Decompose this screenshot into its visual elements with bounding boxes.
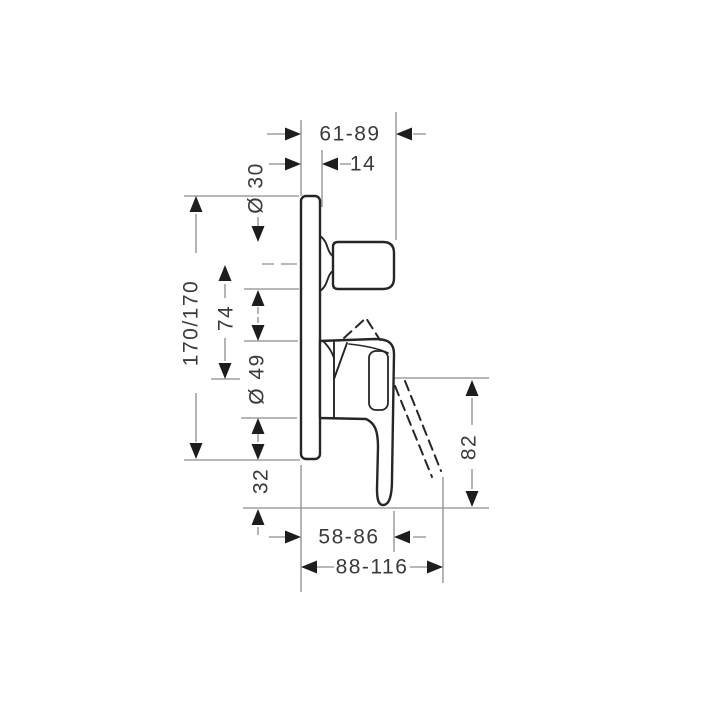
arrow-down-icon	[219, 363, 232, 379]
arrow-left-icon	[322, 158, 338, 171]
arrow-down-icon	[190, 443, 203, 459]
dim-label-knob-diameter: Ø 30	[245, 162, 268, 214]
arrow-up-icon	[466, 380, 479, 396]
arrow-left-icon	[394, 531, 410, 544]
arrow-right-icon	[285, 158, 301, 171]
arrow-up-icon	[252, 509, 265, 525]
fixture	[301, 196, 394, 505]
arrow-down-icon	[252, 325, 265, 341]
dim-label-swung-projection-range: 88-116	[336, 556, 409, 579]
dim-label-lower-offset: 32	[250, 468, 273, 494]
escutcheon-plate-outline	[301, 196, 320, 459]
arrow-up-icon	[252, 290, 265, 306]
technical-drawing-canvas: 61-89 14 Ø 30 170/170 74 Ø 49 32 82 58-8…	[0, 0, 720, 720]
arrow-down-icon	[252, 226, 265, 242]
arrow-up-icon	[252, 418, 265, 434]
lever-swung-position-dashed-inner	[405, 381, 441, 471]
dimension-drawing-svg: 61-89 14 Ø 30 170/170 74 Ø 49 32 82 58-8…	[0, 0, 720, 720]
dim-label-plate-depth: 14	[350, 153, 376, 176]
arrow-down-icon	[252, 444, 265, 460]
arrow-right-icon	[285, 128, 301, 141]
dim-label-hub-diameter: Ø 49	[246, 353, 269, 405]
arrow-left-icon	[396, 128, 412, 141]
diverter-knob-outline	[333, 242, 394, 289]
arrow-right-icon	[285, 531, 301, 544]
dim-label-axis-distance: 74	[215, 305, 238, 331]
arrow-up-icon	[190, 196, 203, 212]
arrow-down-icon	[466, 491, 479, 507]
dim-label-depth-range: 61-89	[319, 123, 380, 146]
dim-label-projection-range: 58-86	[318, 526, 379, 549]
arrow-right-icon	[427, 561, 443, 574]
dim-label-lever-length: 82	[458, 434, 481, 460]
arrow-up-icon	[219, 265, 232, 281]
lever-handle-outline	[320, 339, 394, 505]
dim-label-plate-height: 170/170	[180, 280, 203, 366]
arrow-left-icon	[301, 561, 317, 574]
lever-up-position-dashed	[344, 318, 380, 340]
